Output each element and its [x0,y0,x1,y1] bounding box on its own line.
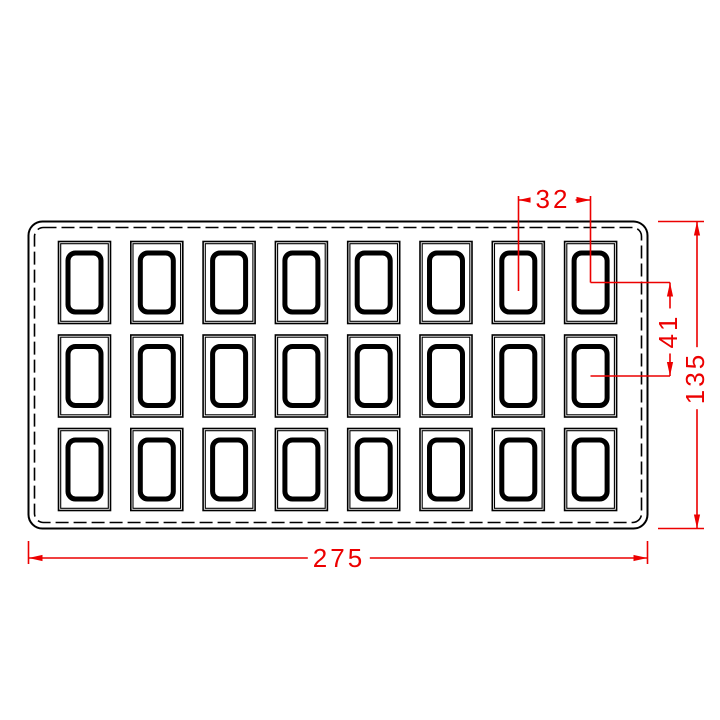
mold-cavity [203,242,255,324]
dim-value-overall-height: 135 [682,347,708,409]
cavity-rim [140,253,173,312]
cad-drawing-canvas: 32 41 135 275 [0,0,720,720]
cavity-rim [285,347,318,406]
cavity-rim [140,440,173,499]
cavity-rim [140,347,173,406]
cavity-rim [430,253,463,312]
mold-cavity [131,335,183,417]
cavity-rim [213,440,246,499]
arrow-down-icon [694,515,700,529]
mold-cavity [275,335,327,417]
mold-cavity [492,335,544,417]
mold-cavity [348,335,400,417]
cavity-rim [357,253,390,312]
mold-cavity [275,242,327,324]
arrow-right-icon [634,555,648,561]
arrow-right-icon [577,197,591,203]
cavity-rim [430,440,463,499]
mold-cavity [420,242,472,324]
dim-value-overall-width: 275 [308,545,370,571]
dim-value-cavity-pitch-y: 41 [655,309,681,354]
mold-cavity [420,335,472,417]
cavity-rim [502,440,535,499]
drawing-svg [0,0,720,720]
arrow-up-icon [667,283,673,297]
mold-cavity [275,429,327,511]
mold-tray [29,222,648,529]
mold-cavity [131,429,183,511]
cavity-grid [59,242,617,511]
mold-cavity [203,429,255,511]
cavity-rim [68,253,101,312]
cavity-rim [285,253,318,312]
mold-cavity [348,429,400,511]
tray-outer-edge [29,222,648,529]
arrow-left-icon [29,555,43,561]
mold-cavity [59,335,111,417]
mold-cavity [565,429,617,511]
mold-cavity [492,429,544,511]
tray-inner-dashed-edge [35,228,642,523]
mold-cavity [59,242,111,324]
cavity-rim [357,347,390,406]
cavity-rim [357,440,390,499]
mold-cavity [348,242,400,324]
mold-cavity [203,335,255,417]
cavity-rim [430,347,463,406]
arrow-down-icon [667,362,673,376]
cavity-rim [285,440,318,499]
cavity-rim [68,440,101,499]
cavity-rim [213,347,246,406]
cavity-rim [213,253,246,312]
mold-cavity [59,429,111,511]
arrow-up-icon [694,222,700,236]
cavity-rim [502,347,535,406]
dim-value-cavity-pitch-x: 32 [531,186,576,212]
cavity-rim [574,440,607,499]
mold-cavity [420,429,472,511]
mold-cavity [131,242,183,324]
cavity-rim [68,347,101,406]
